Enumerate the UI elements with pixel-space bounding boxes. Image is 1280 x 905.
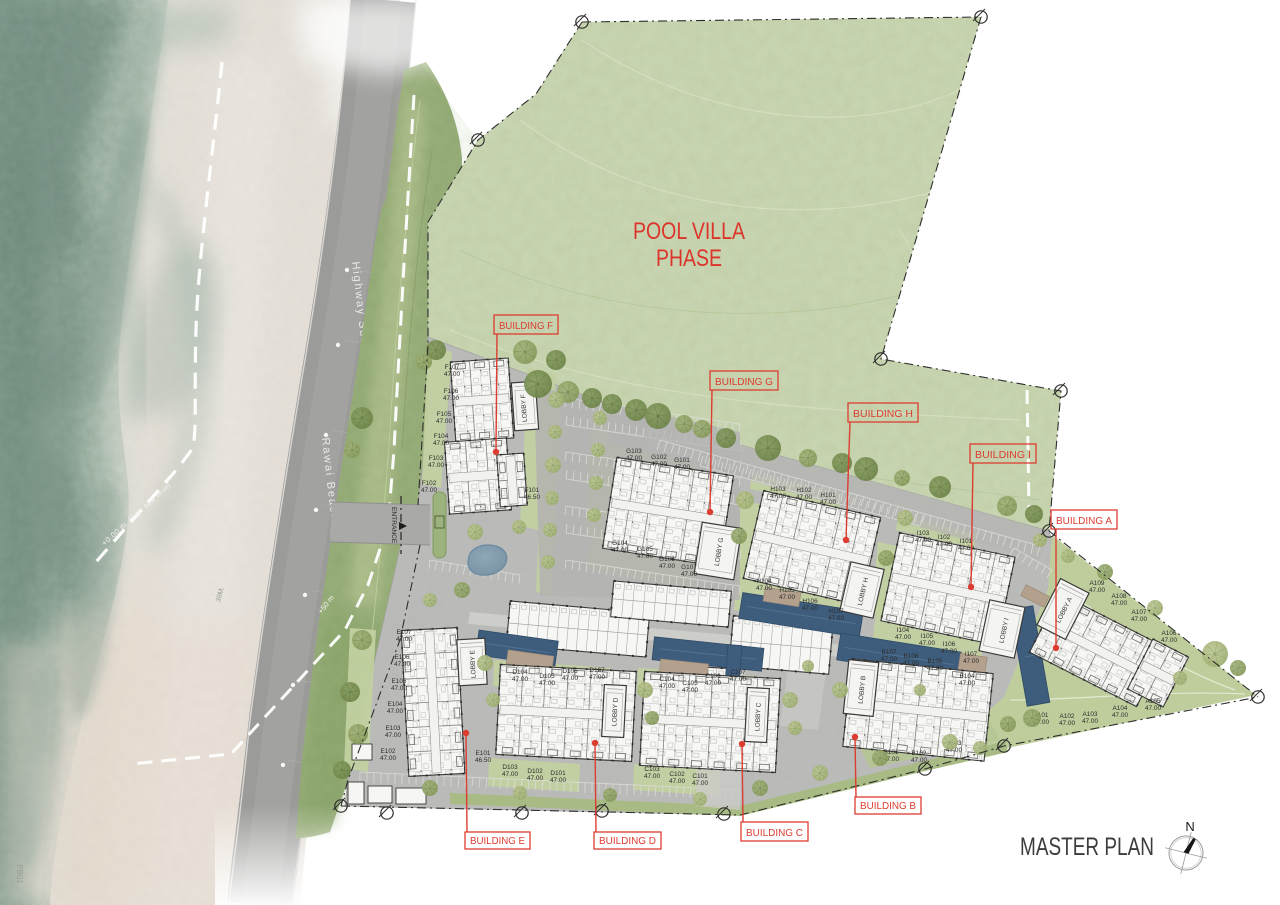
- svg-text:H10347.00: H10347.00: [770, 486, 786, 500]
- svg-text:F10347.00: F10347.00: [428, 455, 444, 469]
- svg-text:PB01: PB01: [15, 864, 24, 884]
- svg-text:D10747.00: D10747.00: [589, 667, 605, 681]
- svg-text:G10147.00: G10147.00: [674, 457, 690, 471]
- svg-text:E10747.00: E10747.00: [396, 629, 412, 643]
- svg-text:BUILDING D: BUILDING D: [599, 835, 656, 847]
- svg-text:E10447.00: E10447.00: [387, 701, 403, 715]
- svg-text:A10247.00: A10247.00: [1059, 713, 1075, 727]
- svg-text:C10447.00: C10447.00: [659, 676, 675, 690]
- svg-text:A10447.00: A10447.00: [1112, 705, 1128, 719]
- svg-text:G10247.00: G10247.00: [651, 454, 667, 468]
- svg-text:BUILDING E: BUILDING E: [470, 835, 525, 847]
- svg-text:H10747.00: H10747.00: [828, 608, 844, 622]
- svg-text:ENTRANCE: ENTRANCE: [390, 507, 397, 544]
- svg-text:G10747.00: G10747.00: [681, 564, 697, 578]
- svg-text:F10447.00: F10447.00: [433, 433, 449, 447]
- svg-text:E10247.00: E10247.00: [380, 748, 396, 762]
- svg-text:D10447.00: D10447.00: [512, 669, 528, 683]
- svg-text:F10146.50: F10146.50: [524, 487, 540, 501]
- svg-text:I10447.00: I10447.00: [895, 627, 911, 641]
- svg-text:C10347.00: C10347.00: [644, 766, 660, 780]
- svg-text:H10647.00: H10647.00: [802, 598, 818, 612]
- svg-text:F10747.00: F10747.00: [444, 364, 460, 378]
- svg-text:G10447.00: G10447.00: [612, 540, 628, 554]
- svg-text:BUILDING G: BUILDING G: [715, 376, 773, 388]
- svg-text:A10647.00: A10647.00: [1161, 630, 1177, 644]
- svg-text:E10547.00: E10547.00: [391, 678, 407, 692]
- svg-text:D10547.00: D10547.00: [539, 673, 555, 687]
- svg-text:BUILDING F: BUILDING F: [499, 320, 553, 332]
- svg-text:BUILDING C: BUILDING C: [746, 827, 803, 839]
- svg-text:N: N: [1185, 819, 1194, 834]
- svg-text:A10847.00: A10847.00: [1111, 593, 1127, 607]
- svg-text:BUILDING I: BUILDING I: [975, 449, 1031, 461]
- svg-text:BUILDING H: BUILDING H: [853, 408, 913, 420]
- svg-text:I10747.00: I10747.00: [963, 651, 979, 665]
- svg-text:B10747.00: B10747.00: [881, 649, 897, 663]
- svg-text:H10547.00: H10547.00: [779, 587, 795, 601]
- svg-text:H10247.00: H10247.00: [796, 487, 812, 501]
- svg-text:C10247.00: C10247.00: [669, 771, 685, 785]
- svg-text:B10547.00: B10547.00: [927, 658, 943, 672]
- svg-text:A10347.00: A10347.00: [1082, 711, 1098, 725]
- svg-text:G10347.00: G10347.00: [626, 448, 642, 462]
- svg-text:F10647.00: F10647.00: [443, 388, 459, 402]
- svg-text:A10747.00: A10747.00: [1131, 609, 1147, 623]
- svg-text:C10547.00: C10547.00: [682, 680, 698, 694]
- svg-text:BUILDING B: BUILDING B: [860, 800, 916, 812]
- svg-text:C10747.00: C10747.00: [730, 669, 746, 683]
- svg-text:E10647.00: E10647.00: [394, 654, 410, 668]
- svg-text:C10147.00: C10147.00: [692, 773, 708, 787]
- svg-text:B10447.00: B10447.00: [959, 673, 975, 687]
- svg-text:D10347.00: D10347.00: [502, 764, 518, 778]
- svg-text:D10147.00: D10147.00: [550, 770, 566, 784]
- svg-text:C10647.00: C10647.00: [705, 673, 721, 687]
- svg-text:PHASE: PHASE: [656, 245, 722, 272]
- svg-text:A10547.00: A10547.00: [1145, 698, 1161, 712]
- svg-text:I10547.00: I10547.00: [919, 633, 935, 647]
- svg-text:H10447.00: H10447.00: [756, 578, 772, 592]
- svg-text:B10247.00: B10247.00: [911, 750, 927, 764]
- svg-text:G10647.00: G10647.00: [659, 556, 675, 570]
- svg-text:B10647.00: B10647.00: [903, 653, 919, 667]
- svg-text:D10247.00: D10247.00: [527, 768, 543, 782]
- svg-text:BUILDING A: BUILDING A: [1056, 515, 1112, 527]
- svg-text:A10947.00: A10947.00: [1089, 580, 1105, 594]
- svg-text:I10647.00: I10647.00: [941, 641, 957, 655]
- svg-text:E10146.50: E10146.50: [475, 750, 491, 764]
- svg-text:D10647.00: D10647.00: [562, 668, 578, 682]
- svg-text:G10547.00: G10547.00: [637, 546, 653, 560]
- svg-text:F10247.00: F10247.00: [421, 480, 437, 494]
- svg-text:I10247.00: I10247.00: [936, 534, 952, 548]
- svg-text:POOL VILLA: POOL VILLA: [633, 218, 746, 245]
- svg-text:MASTER PLAN: MASTER PLAN: [1020, 833, 1154, 861]
- svg-text:F10547.00: F10547.00: [436, 411, 452, 425]
- svg-text:E10347.00: E10347.00: [385, 725, 401, 739]
- svg-text:I10347.00: I10347.00: [915, 530, 931, 544]
- svg-text:H10147.00: H10147.00: [820, 492, 836, 506]
